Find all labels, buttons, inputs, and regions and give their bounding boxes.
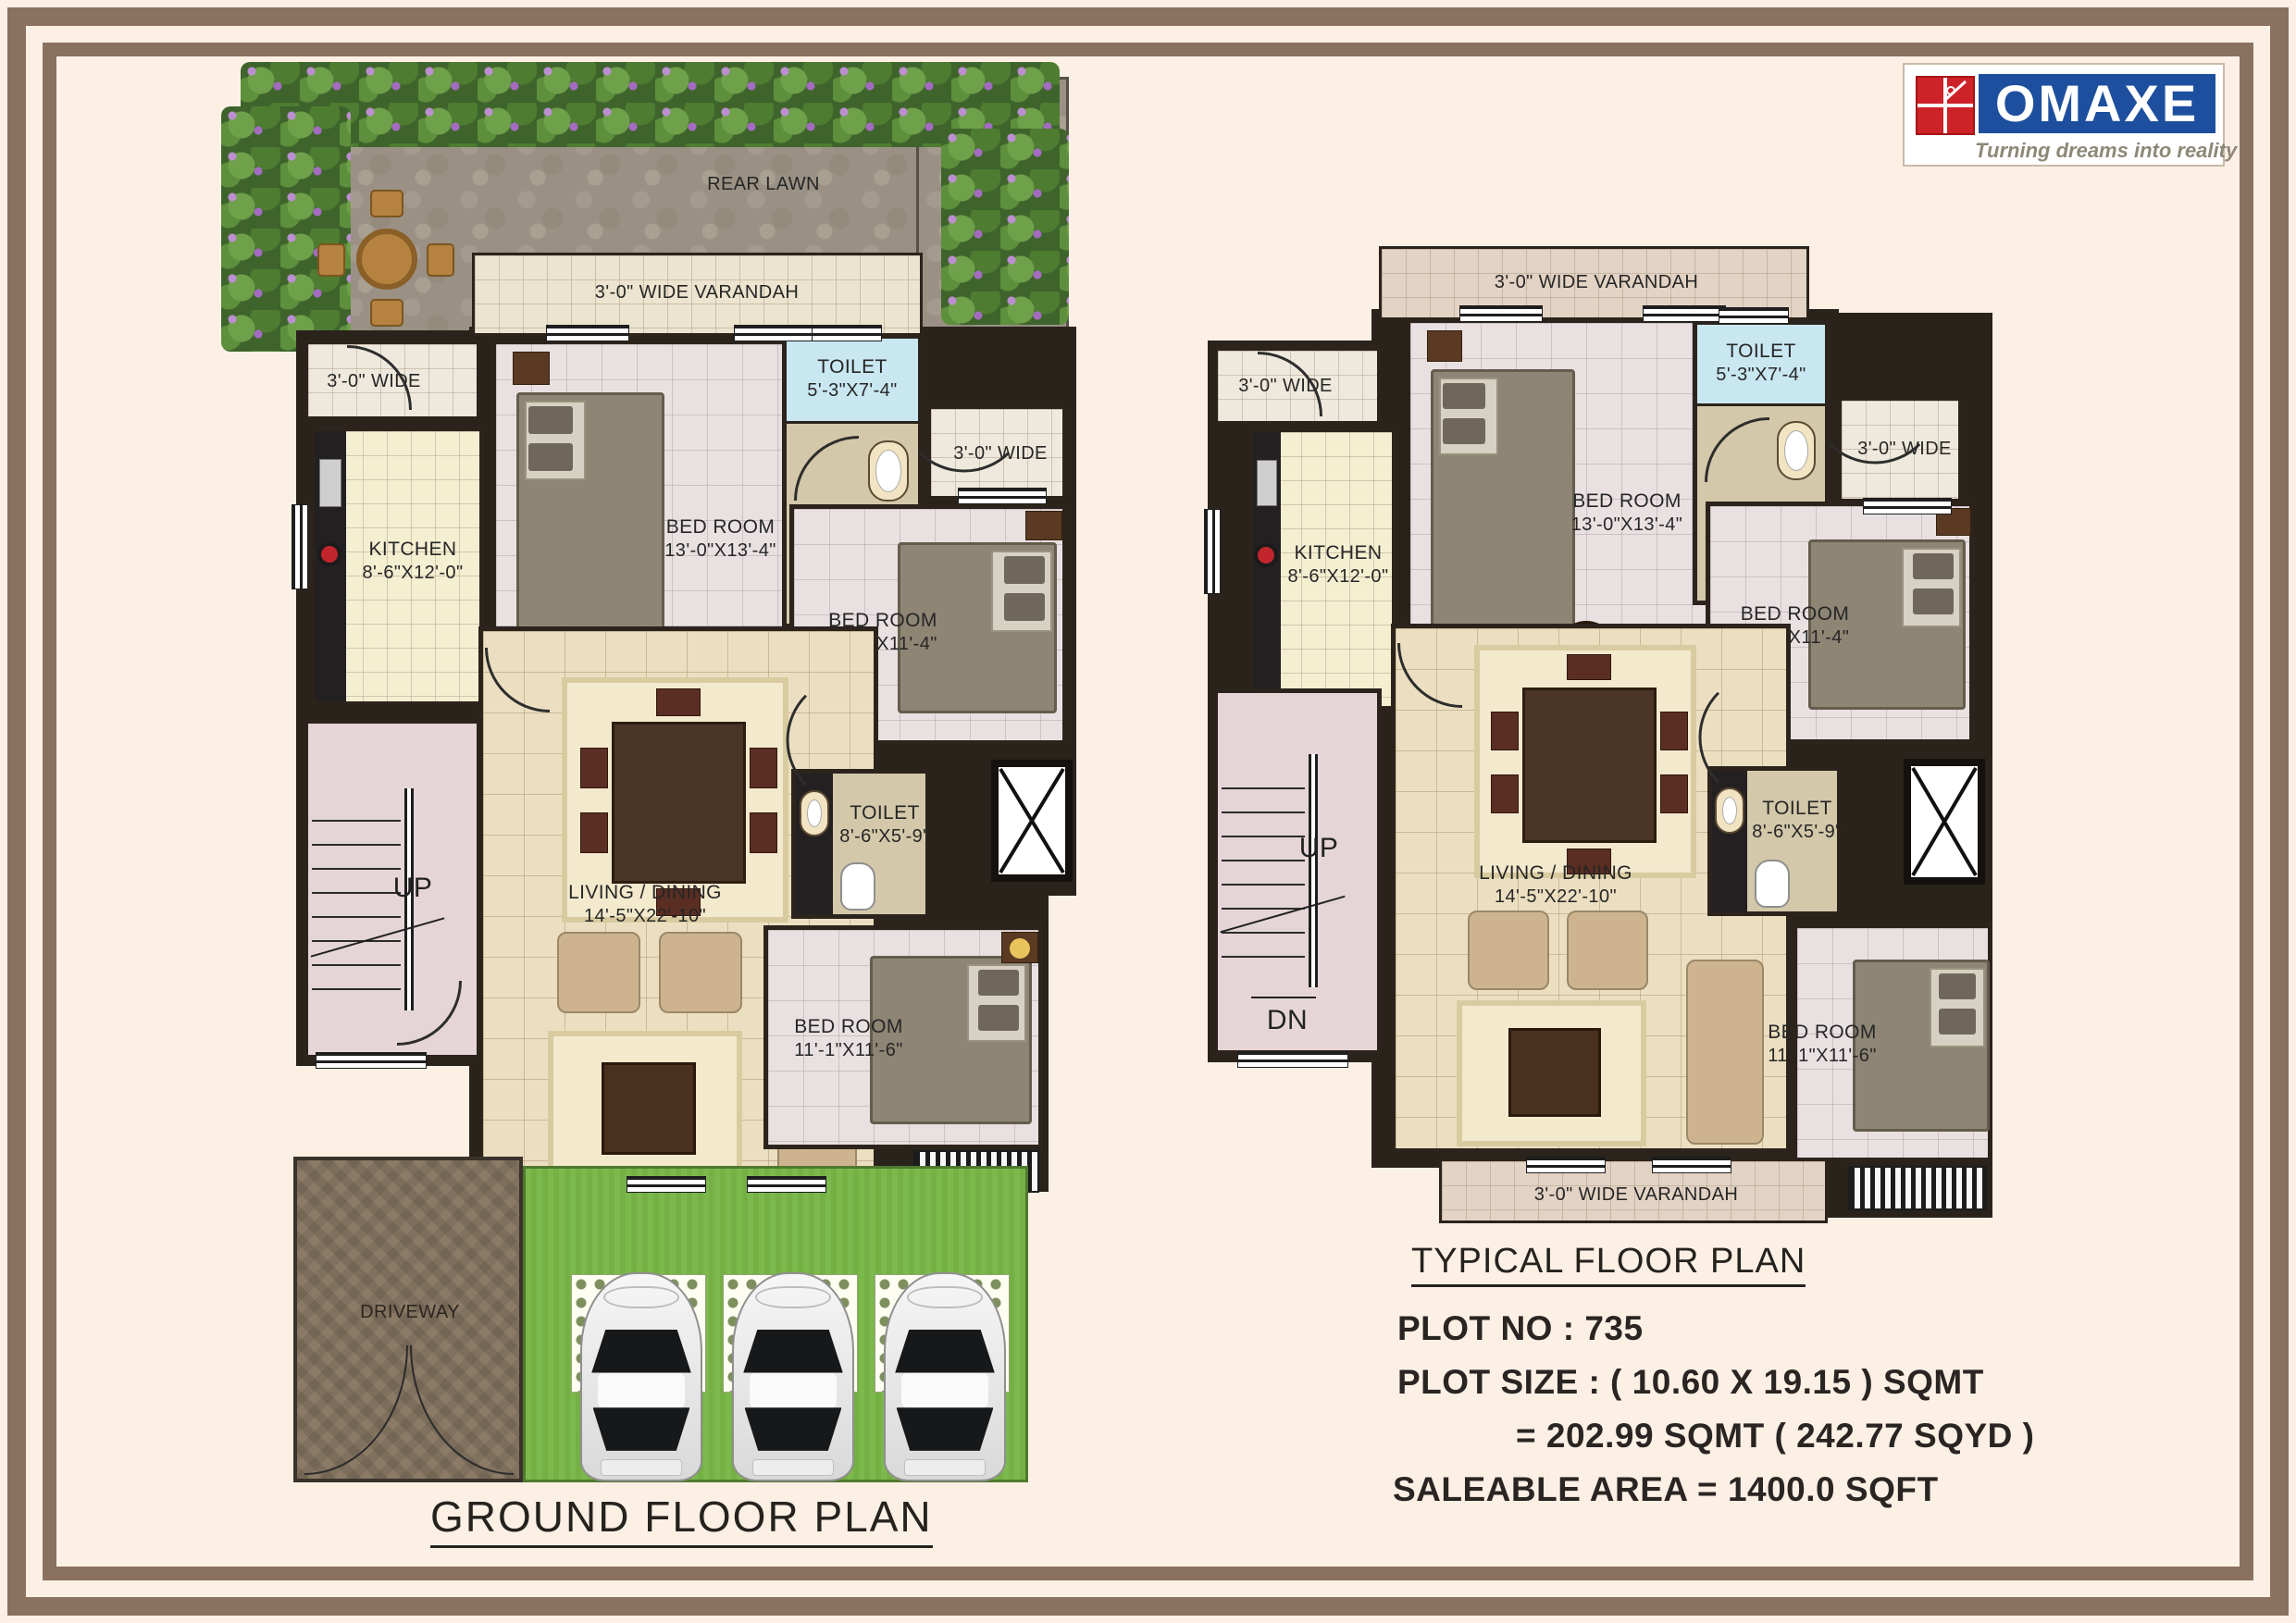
door-arc — [794, 436, 859, 501]
dining-chair — [750, 812, 777, 853]
car-hood — [907, 1286, 983, 1308]
stove-burner — [317, 542, 341, 566]
window — [734, 325, 817, 341]
dining-rug — [1474, 645, 1696, 878]
shaft-x-icon — [1911, 766, 1978, 877]
car-hood — [755, 1286, 831, 1308]
window — [546, 325, 629, 341]
toilet2-counter — [1712, 771, 1747, 911]
dining-table — [612, 722, 746, 884]
car — [580, 1272, 702, 1481]
car — [732, 1272, 854, 1481]
kitchen-counter — [315, 431, 346, 701]
living-label: LIVING / DINING 14'-5"X22'-10" — [520, 881, 770, 927]
dining-table — [1522, 688, 1657, 843]
armchair — [659, 932, 742, 1013]
kitchen-dim: 8'-6"X12'-0" — [346, 562, 479, 584]
car-trunk — [752, 1459, 833, 1476]
omaxe-wordmark: OMAXE — [1979, 74, 2215, 133]
window — [812, 325, 882, 341]
garden-chair — [427, 243, 454, 277]
living-name: LIVING / DINING — [1431, 861, 1681, 886]
armchair — [1567, 911, 1648, 990]
car-windshield — [895, 1330, 995, 1373]
typical-plan-title-wrap: TYPICAL FLOOR PLAN — [1411, 1242, 1806, 1282]
dining-chair — [750, 748, 777, 788]
kitchen-label: KITCHEN 8'-6"X12'-0" — [1279, 541, 1397, 588]
varandah-bottom-label: 3'-0" WIDE VARANDAH — [1497, 1183, 1775, 1206]
omaxe-logo-mark-icon — [1916, 76, 1975, 135]
toilet1-label: TOILET 5'-3"X7'-4" — [1697, 340, 1825, 386]
car-trunk — [601, 1459, 681, 1476]
dining-chair — [1567, 654, 1611, 680]
wash-basin — [1715, 787, 1744, 834]
garden-chair — [370, 190, 403, 217]
living-label: LIVING / DINING 14'-5"X22'-10" — [1431, 861, 1681, 908]
toilet1-dim: 5'-3"X7'-4" — [1697, 364, 1825, 386]
living-rug — [548, 1031, 742, 1186]
wash-basin — [800, 790, 829, 836]
bed-pillow — [1913, 553, 1954, 579]
water-closet — [840, 862, 875, 911]
coffee-table — [602, 1062, 696, 1155]
living-name: LIVING / DINING — [520, 881, 770, 905]
ground-plan-title-wrap: GROUND FLOOR PLAN — [430, 1492, 933, 1542]
window — [292, 504, 308, 589]
toilet-2: TOILET 8'-6"X5'-9" — [1707, 766, 1842, 916]
toilet2-dim: 8'-6"X5'-9" — [837, 825, 933, 848]
stairs-up-label: UP — [371, 872, 454, 906]
toilet2-label: TOILET 8'-6"X5'-9" — [837, 801, 933, 848]
basin — [807, 799, 822, 827]
stair-rail — [1309, 754, 1318, 987]
window — [1643, 305, 1726, 322]
car-windshield — [591, 1330, 691, 1373]
window — [747, 1176, 826, 1193]
window — [1459, 305, 1543, 322]
armchair — [557, 932, 640, 1013]
varandah-bottom: 3'-0" WIDE VARANDAH — [1439, 1158, 1828, 1223]
bed-pillow — [1939, 973, 1976, 999]
toilet2-name: TOILET — [837, 801, 933, 825]
varandah-top: 3'-0" WIDE VARANDAH — [472, 253, 923, 336]
kitchen-sink — [319, 459, 341, 507]
lamp — [1010, 938, 1030, 959]
stairs-dn-label: DN — [1246, 1004, 1329, 1038]
car-roof — [750, 1373, 838, 1408]
dn-arrow — [1251, 997, 1316, 998]
bedroom2-name: BED ROOM — [1714, 602, 1876, 626]
toilet1-name: TOILET — [787, 355, 918, 379]
shaft — [991, 760, 1073, 882]
ground-plan-title: GROUND FLOOR PLAN — [430, 1493, 933, 1548]
toilet2-label: TOILET 8'-6"X5'-9" — [1751, 797, 1843, 843]
toilet1-name: TOILET — [1697, 340, 1825, 364]
stove-burner — [1254, 543, 1278, 567]
bedroom-3: BED ROOM 11'-1"X11'-6" — [763, 925, 1043, 1149]
plot-size: PLOT SIZE : ( 10.60 X 19.15 ) SQMT — [1397, 1363, 1984, 1402]
omaxe-tagline: Turning dreams into reality — [1975, 139, 2237, 163]
floor-plan-sheet: { "colors": { "background": "#fcf0e5", "… — [0, 0, 2296, 1623]
kitchen-label: KITCHEN 8'-6"X12'-0" — [346, 538, 479, 584]
basin — [1722, 797, 1737, 824]
bedroom3-dim: 11'-1"X11'-6" — [1744, 1045, 1901, 1067]
bed-pillow — [978, 970, 1019, 996]
staircase: UP DN — [1213, 688, 1382, 1055]
driveway: DRIVEWAY — [293, 1157, 523, 1482]
coffee-table — [1508, 1028, 1601, 1117]
kitchen: KITCHEN 8'-6"X12'-0" — [1248, 427, 1396, 711]
bedroom3-dim: 11'-1"X11'-6" — [770, 1039, 927, 1061]
window — [1237, 1051, 1348, 1068]
bed-pillow — [1004, 593, 1045, 621]
car-rear-window — [897, 1407, 994, 1451]
shaft-x-icon — [999, 767, 1065, 874]
hedge-right — [941, 129, 1069, 325]
bedroom-3: BED ROOM 11'-1"X11'-6" — [1793, 923, 1992, 1162]
bed-pillow — [528, 443, 573, 471]
stair-treads — [1222, 765, 1305, 978]
varandah-top-label: 3'-0" WIDE VARANDAH — [1458, 271, 1735, 293]
car-rear-window — [593, 1407, 690, 1451]
kitchen: KITCHEN 8'-6"X12'-0" — [310, 427, 484, 706]
bed-pillow — [978, 1005, 1019, 1031]
dining-chair — [580, 812, 608, 853]
living-rug — [1457, 1000, 1646, 1146]
side-table — [1427, 330, 1462, 362]
side-table — [1025, 511, 1062, 540]
omaxe-logo: OMAXE Turning dreams into reality — [1903, 63, 2225, 167]
staircase: UP — [304, 719, 481, 1059]
basin — [1784, 430, 1808, 471]
bed-pillow — [1443, 383, 1485, 409]
typical-floor-plan: 3'-0" WIDE VARANDAH 3'-0" WIDE KITCHEN 8… — [1200, 231, 1996, 1231]
plot-no: PLOT NO : 735 — [1397, 1309, 1644, 1348]
slat-window — [1848, 1166, 1987, 1210]
water-closet — [1755, 860, 1790, 908]
door-arc — [1705, 417, 1769, 482]
living-dim: 14'-5"X22'-10" — [1431, 886, 1681, 908]
car-roof — [598, 1373, 686, 1408]
ground-floor-plan: REAR LAWN 3'-0" WIDE VARANDAH 3'-0" WIDE… — [227, 69, 1078, 1485]
garden-chair — [370, 299, 403, 327]
kitchen-counter — [1253, 432, 1281, 706]
garden-table — [356, 229, 417, 290]
bed-pillow — [528, 406, 573, 434]
car-rear-window — [745, 1407, 842, 1451]
gate-leaf — [410, 1345, 514, 1475]
toilet-2: TOILET 8'-6"X5'-9" — [791, 769, 930, 919]
bedroom3-label: BED ROOM 11'-1"X11'-6" — [1744, 1021, 1901, 1067]
hedge-top — [241, 62, 1060, 147]
car-trunk — [904, 1459, 985, 1476]
toilet1-blue-panel: TOILET 5'-3"X7'-4" — [1697, 325, 1825, 406]
bedroom3-name: BED ROOM — [1744, 1021, 1901, 1045]
dining-chair — [580, 748, 608, 788]
window — [1863, 498, 1952, 514]
window — [1204, 509, 1221, 594]
window — [627, 1176, 706, 1193]
shaft — [1904, 759, 1985, 885]
bedroom3-name: BED ROOM — [770, 1015, 927, 1039]
dining-chair — [1491, 774, 1519, 813]
driveway-label: DRIVEWAY — [317, 1301, 503, 1323]
car-windshield — [743, 1330, 843, 1373]
basin — [875, 450, 901, 492]
saleable-area: SALEABLE AREA = 1400.0 SQFT — [1393, 1470, 1939, 1509]
window — [1719, 307, 1789, 324]
window — [1526, 1157, 1606, 1173]
hedge-left — [221, 106, 351, 352]
door-arc — [397, 981, 462, 1046]
toilet1-label: TOILET 5'-3"X7'-4" — [787, 355, 918, 402]
toilet2-name: TOILET — [1751, 797, 1843, 821]
kitchen-sink — [1257, 460, 1277, 506]
garden-chair — [317, 243, 345, 277]
window — [316, 1052, 427, 1069]
car — [884, 1272, 1006, 1481]
window — [1652, 1157, 1731, 1173]
bed-pillow — [1004, 556, 1045, 584]
kitchen-name: KITCHEN — [1279, 541, 1397, 565]
bed-pillow — [1913, 588, 1954, 614]
side-table — [513, 352, 550, 385]
gate-leaf — [304, 1345, 408, 1475]
car-roof — [901, 1373, 989, 1408]
kitchen-dim: 8'-6"X12'-0" — [1279, 565, 1397, 588]
bed-pillow — [1443, 418, 1485, 444]
dining-chair — [1491, 712, 1519, 750]
toilet2-dim: 8'-6"X5'-9" — [1751, 821, 1843, 843]
side-table — [1001, 932, 1038, 963]
dining-chair — [1660, 712, 1688, 750]
armchair — [1468, 911, 1549, 990]
plot-size-2: = 202.99 SQMT ( 242.77 SQYD ) — [1516, 1417, 2035, 1456]
toilet1-blue-panel: TOILET 5'-3"X7'-4" — [787, 339, 918, 424]
dining-chair — [656, 688, 701, 716]
toilet2-counter — [796, 774, 833, 914]
dining-chair — [1660, 774, 1688, 813]
door-arc — [1397, 643, 1462, 708]
varandah-top-label: 3'-0" WIDE VARANDAH — [558, 281, 836, 304]
living-dim: 14'-5"X22'-10" — [520, 905, 770, 927]
bed-pillow — [1939, 1009, 1976, 1035]
wash-basin — [868, 440, 909, 502]
typical-plan-title: TYPICAL FLOOR PLAN — [1411, 1242, 1806, 1287]
door-arc — [485, 648, 550, 712]
car-hood — [603, 1286, 679, 1308]
window — [958, 488, 1047, 504]
kitchen-name: KITCHEN — [346, 538, 479, 562]
rear-lawn-label: REAR LAWN — [671, 173, 856, 195]
bedroom3-label: BED ROOM 11'-1"X11'-6" — [770, 1015, 927, 1061]
logo-diagonal-icon — [1917, 78, 1969, 130]
wash-basin — [1777, 421, 1816, 480]
stairs-up-label: UP — [1277, 832, 1360, 866]
toilet1-dim: 5'-3"X7'-4" — [787, 379, 918, 402]
